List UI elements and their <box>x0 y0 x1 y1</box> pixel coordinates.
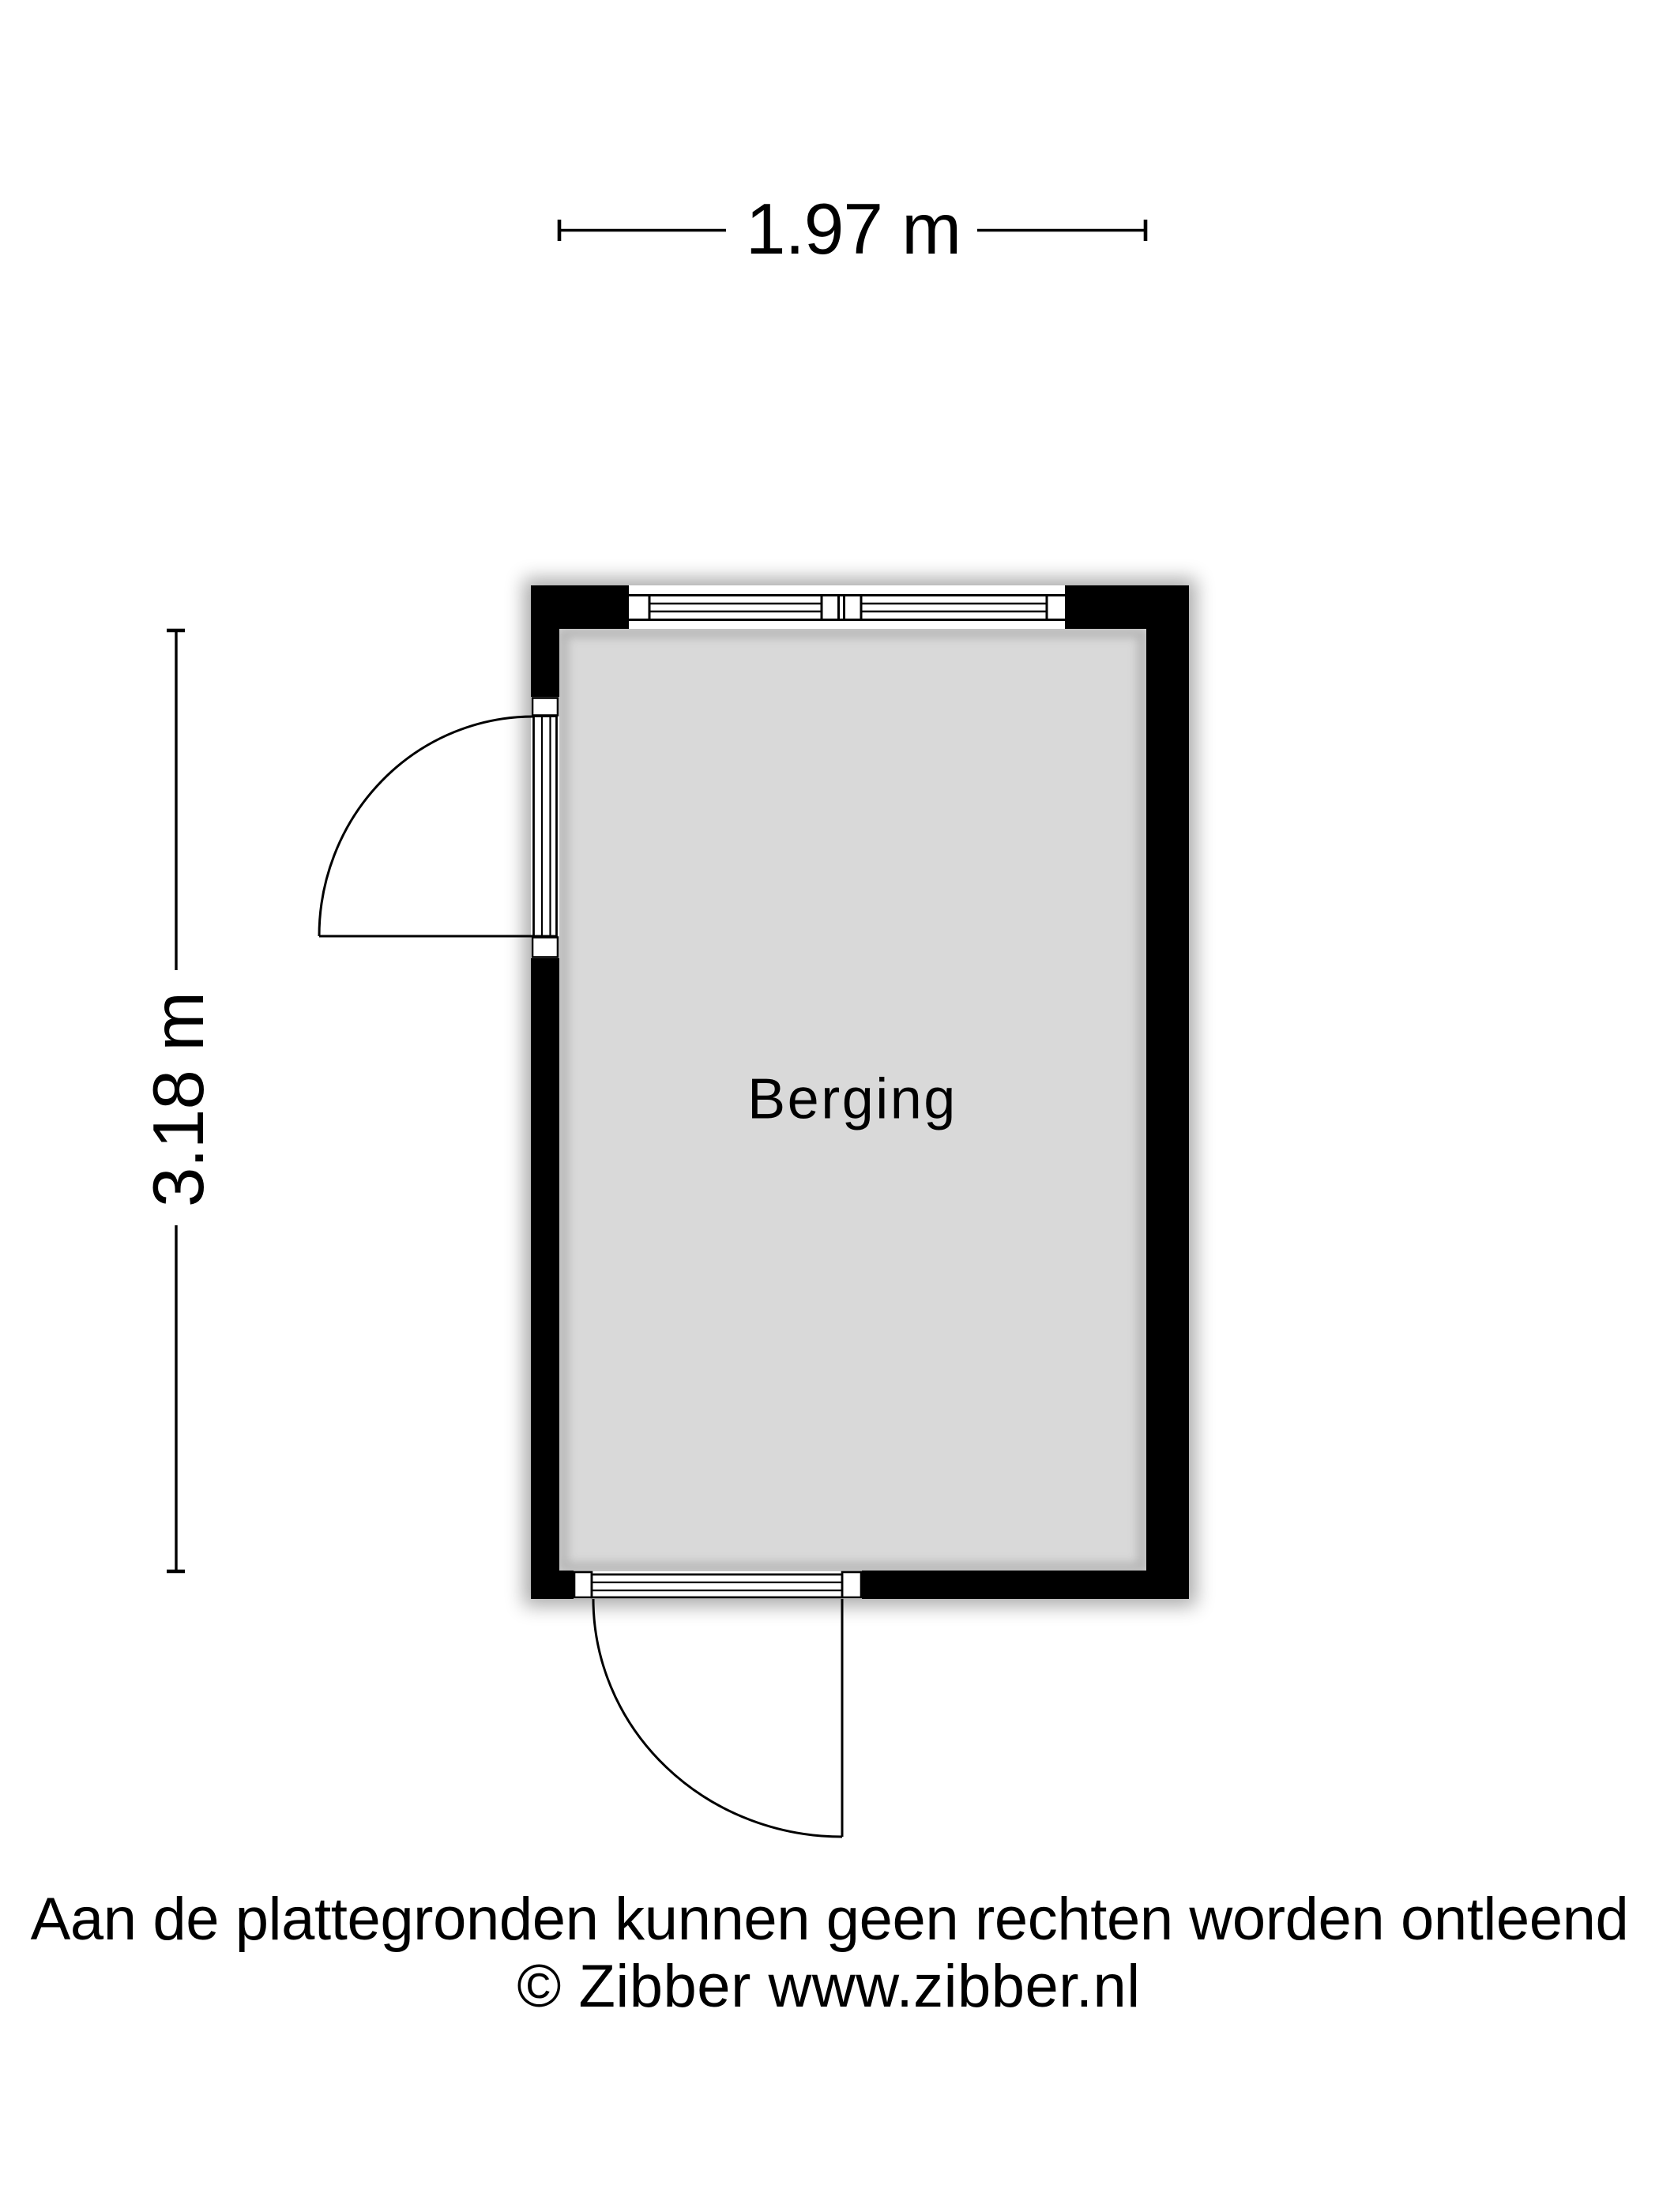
svg-text:Aan de plattegronden kunnen ge: Aan de plattegronden kunnen geen rechten… <box>31 1886 1629 1953</box>
svg-text:1.97 m: 1.97 m <box>746 190 961 269</box>
svg-text:3.18 m: 3.18 m <box>139 992 219 1207</box>
svg-text:Berging: Berging <box>747 1068 957 1131</box>
svg-text:© Zibber www.zibber.nl: © Zibber www.zibber.nl <box>517 1953 1140 2020</box>
